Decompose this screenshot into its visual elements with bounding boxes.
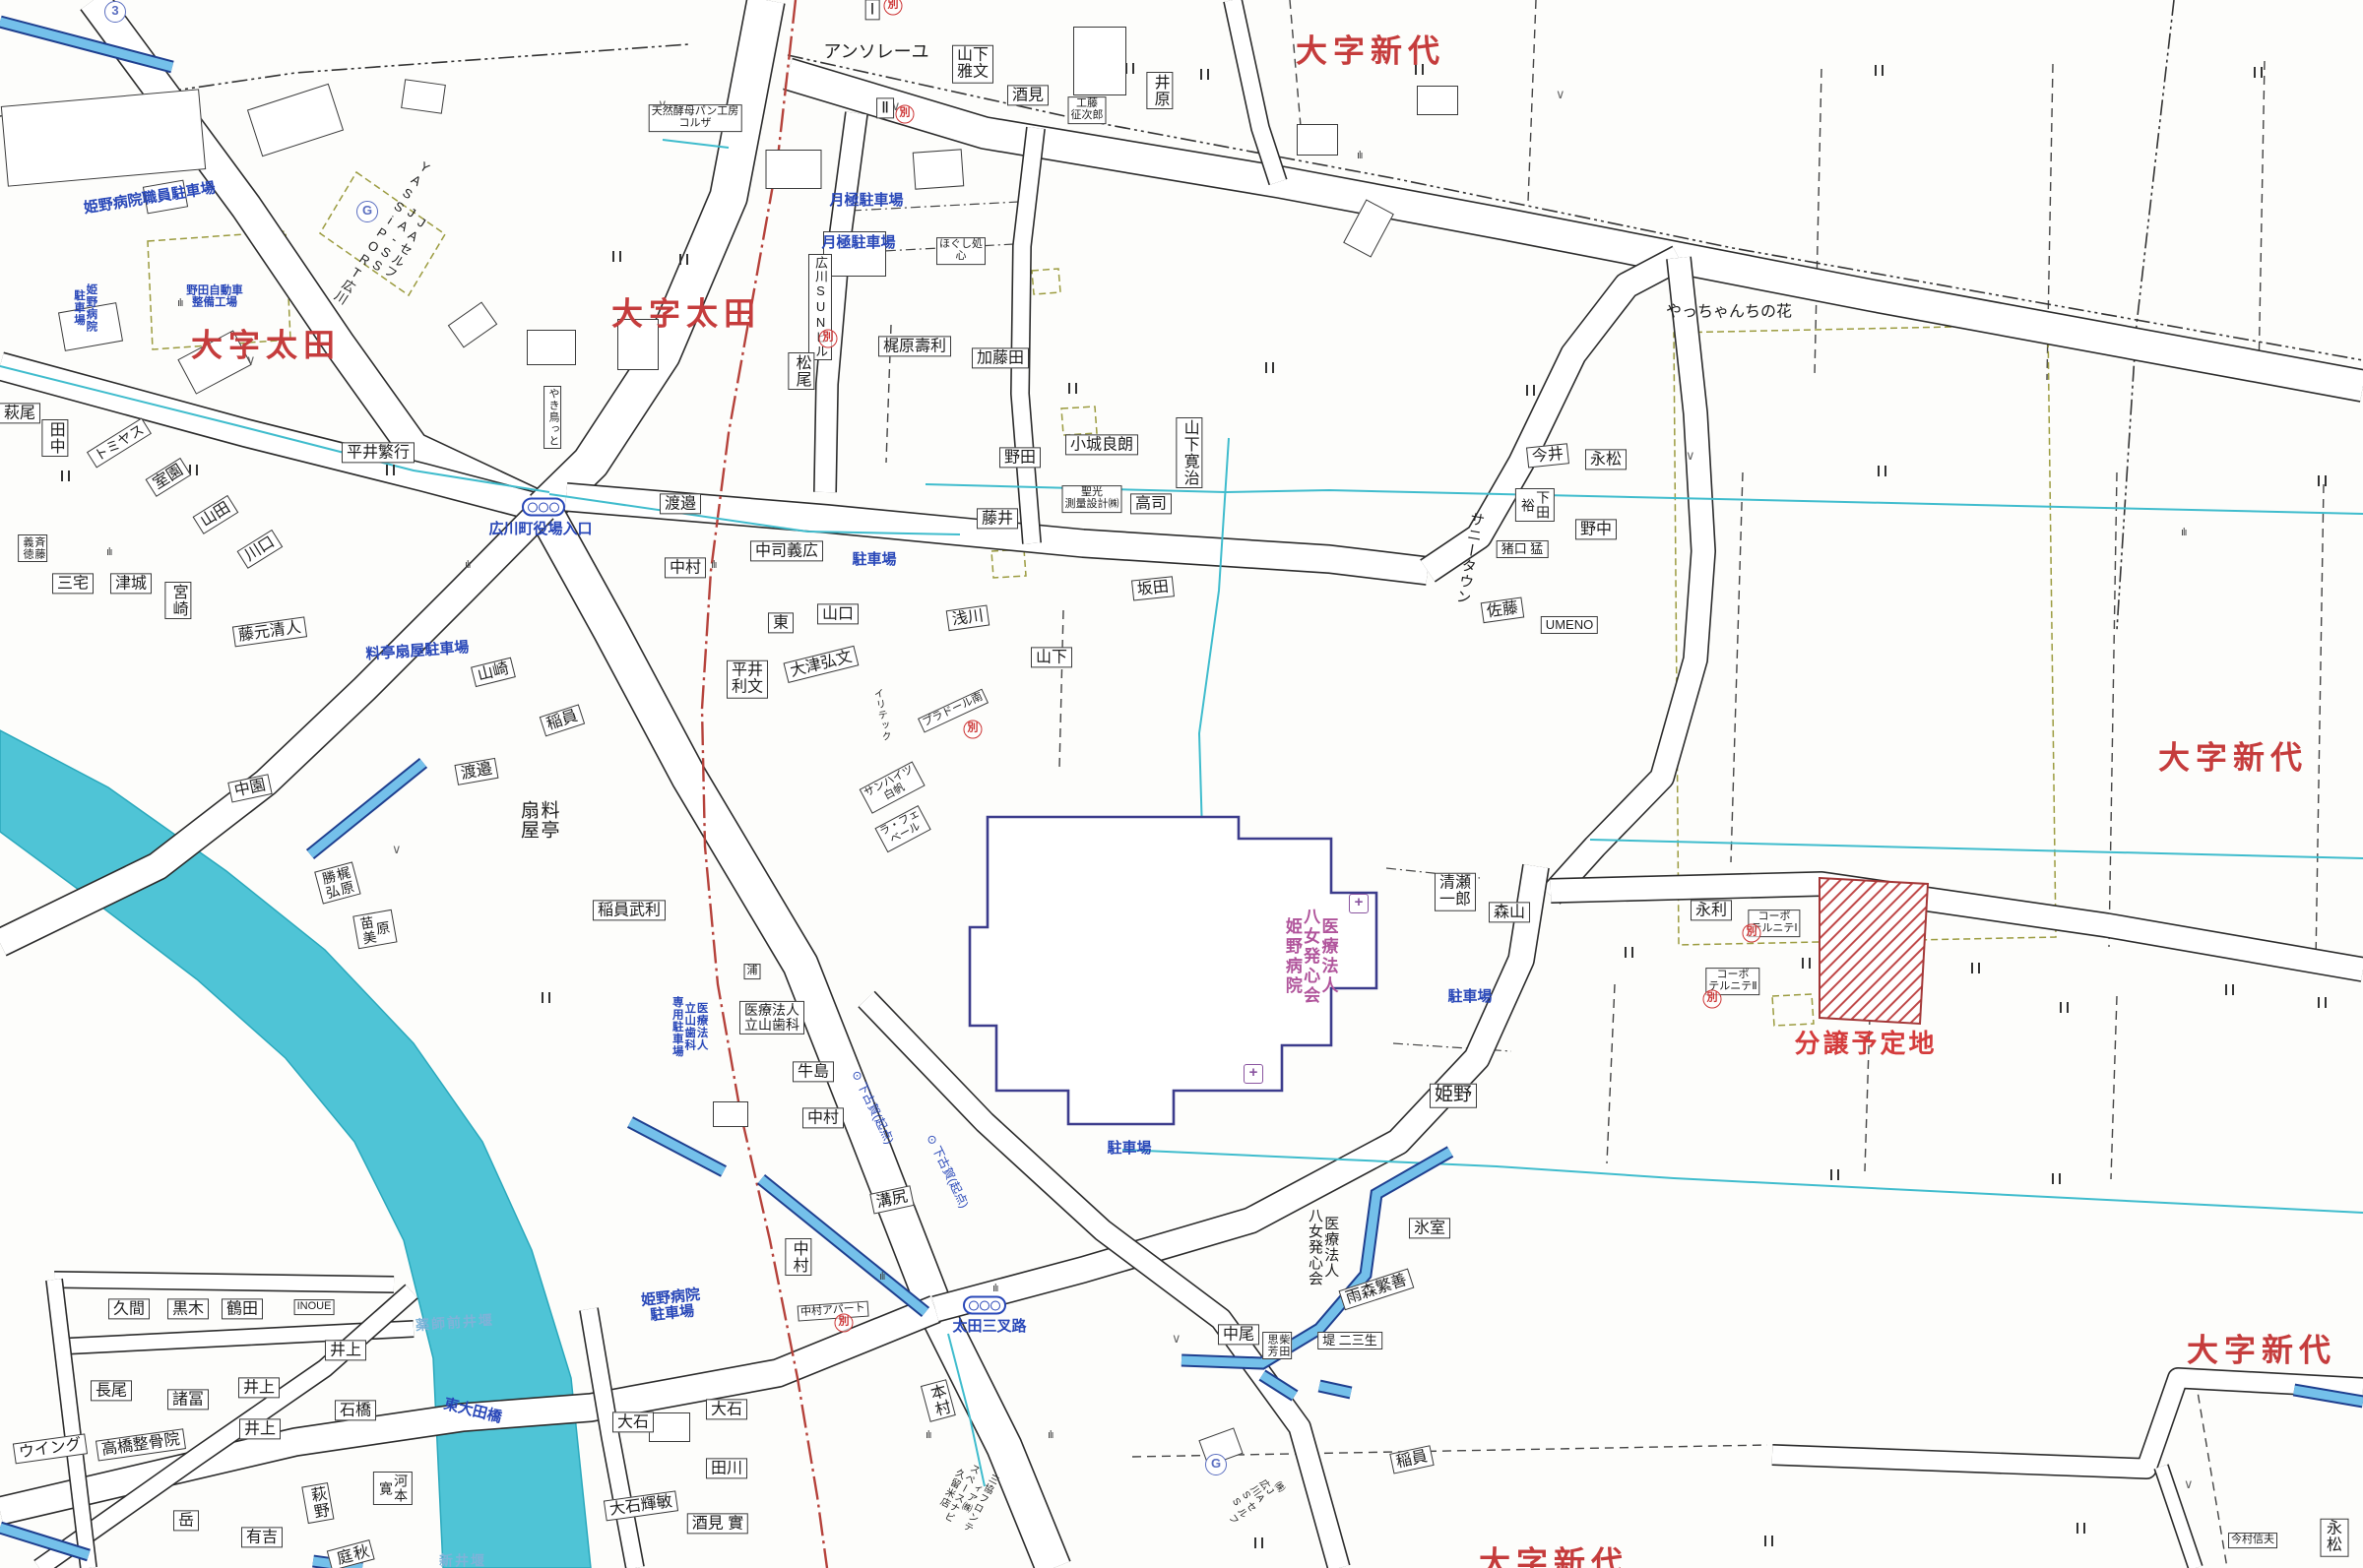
- residential-map-canvas: 大字太田大字太田大字新代大字新代大字新代大字新代分譲予定地姫野病院職員駐車場姫野…: [0, 0, 2363, 1568]
- field-mark: ılı: [465, 559, 471, 571]
- map-label: 氷室: [1409, 1218, 1450, 1238]
- map-label: 原 苗美: [352, 909, 398, 949]
- map-label: 堤 二三生: [1317, 1332, 1382, 1349]
- map-label: 中村: [785, 1238, 811, 1276]
- field-mark: ılı: [992, 1283, 998, 1294]
- map-label: 梶原壽利: [878, 336, 951, 356]
- map-label: 坂田: [1131, 576, 1175, 601]
- map-label: 岳: [173, 1510, 199, 1531]
- map-label: 久間: [108, 1298, 150, 1319]
- gas-station-icon: G: [1205, 1454, 1227, 1475]
- map-label: 鶴田: [222, 1298, 263, 1319]
- map-label: 医療法人 立山歯科: [739, 1001, 804, 1035]
- building-footprint: [1073, 27, 1126, 95]
- rice-field-mark: [2316, 475, 2329, 486]
- map-label: 東: [768, 612, 794, 633]
- hospital-cross-icon: +: [1244, 1064, 1263, 1084]
- building-footprint: [649, 1412, 690, 1442]
- building-footprint: [1297, 124, 1338, 156]
- rice-field-mark: [59, 470, 72, 481]
- map-label: 平井繁行: [342, 442, 415, 463]
- building-footprint: [1, 89, 206, 186]
- rice-field-mark: [2316, 997, 2329, 1008]
- field-mark: ılı: [1357, 150, 1363, 161]
- rice-field-mark: [1800, 958, 1813, 969]
- vegetation-mark: ∨: [392, 842, 402, 857]
- map-label: 猪口 猛: [1497, 540, 1549, 558]
- map-label: 山下 雅文: [952, 45, 993, 84]
- map-label: 藤井: [977, 508, 1018, 529]
- annex-betsu-icon: 別: [1743, 924, 1761, 943]
- map-label: 永利: [1691, 900, 1732, 920]
- map-label: 山下: [1031, 647, 1072, 667]
- map-label: 大字太田: [191, 329, 341, 363]
- map-label: 黒木: [167, 1298, 209, 1319]
- building-footprint: [527, 330, 576, 365]
- map-label: 大字新代: [2158, 741, 2308, 776]
- map-label: 三宅: [52, 573, 94, 594]
- map-label: 浦: [744, 964, 761, 979]
- rice-field-mark: [1828, 1169, 1841, 1180]
- map-label: 工藤 征次郎: [1068, 96, 1107, 124]
- map-label: 大石: [706, 1399, 747, 1419]
- map-label: 広川町役場入口: [488, 522, 592, 537]
- map-label: 井上: [238, 1377, 280, 1398]
- rice-field-mark: [1969, 963, 1982, 973]
- rice-field-mark: [1762, 1536, 1775, 1546]
- map-label: 津城: [110, 573, 152, 594]
- map-label: INOUE: [294, 1299, 335, 1315]
- map-label: 医療法人 立山歯科 専用駐車場: [671, 996, 707, 1058]
- rice-field-mark: [384, 465, 397, 475]
- vegetation-mark: ∨: [1686, 448, 1695, 464]
- map-label: 大字新代: [1479, 1546, 1629, 1568]
- map-label: 斉藤 義徳: [18, 534, 47, 562]
- map-label: 下田 裕: [1515, 488, 1555, 522]
- rice-field-mark: [1263, 362, 1276, 373]
- map-label: 大字新代: [1296, 34, 1445, 69]
- map-label: 酒見 實: [687, 1513, 748, 1534]
- map-label: 松尾: [788, 352, 814, 390]
- map-label: 駐車場: [1447, 989, 1492, 1005]
- field-mark: ılı: [2181, 527, 2187, 538]
- rice-field-mark: [2058, 1002, 2071, 1013]
- field-mark: ılı: [1048, 1429, 1054, 1441]
- building-footprint: [713, 1101, 748, 1127]
- map-label: 月極駐車場: [829, 193, 903, 209]
- map-label: 分譲予定地: [1794, 1030, 1937, 1057]
- map-label: やっちゃんちの花: [1666, 303, 1792, 320]
- map-label: 中村: [665, 557, 706, 578]
- rice-field-mark: [540, 992, 552, 1003]
- map-label: 大石: [612, 1411, 654, 1432]
- map-label: 医療法人 八女発心会 姫野病院: [1282, 908, 1336, 1006]
- map-label: 野田自動車 整備工場: [186, 285, 243, 310]
- map-label: 井上: [239, 1418, 281, 1439]
- map-label: Ⅱ: [876, 97, 894, 118]
- building-footprint: [401, 79, 446, 114]
- map-label: やき鳥っと: [543, 386, 561, 449]
- rice-field-mark: [1873, 65, 1885, 76]
- map-label: 萩尾: [0, 403, 40, 423]
- map-geometry-layer: [0, 0, 2363, 1568]
- map-label: 大字太田: [611, 297, 761, 332]
- map-label: 姫野病院 駐車場: [640, 1287, 702, 1325]
- map-label: 永松: [2321, 1519, 2349, 1557]
- map-label: 天然酵母パン工房 コルザ: [649, 104, 742, 132]
- rice-field-mark: [2252, 67, 2265, 78]
- map-label: 森山: [1489, 902, 1530, 922]
- traffic-signal-icon: [522, 498, 565, 517]
- map-label: 牛島: [793, 1061, 834, 1082]
- map-label: 駐車場: [852, 552, 896, 568]
- map-label: 料亭 扇屋: [517, 800, 557, 840]
- field-mark: ılı: [879, 1271, 885, 1283]
- field-mark: ılı: [106, 546, 112, 558]
- map-label: 太田三叉路: [952, 1319, 1026, 1335]
- annex-betsu-icon: 別: [1703, 990, 1722, 1009]
- map-label: 月極駐車場: [821, 235, 895, 251]
- map-label: 長尾: [91, 1380, 132, 1401]
- map-label: 新井堰: [439, 1553, 486, 1568]
- annex-betsu-icon: 別: [896, 105, 915, 124]
- rice-field-mark: [1198, 69, 1211, 80]
- sheet-number-icon: 3: [104, 1, 126, 23]
- traffic-signal-icon: [963, 1296, 1006, 1315]
- rice-field-mark: [677, 254, 690, 265]
- map-label: 中村: [802, 1107, 844, 1128]
- vegetation-mark: ∨: [1172, 1331, 1181, 1347]
- vegetation-mark: ∨: [2184, 1476, 2194, 1492]
- map-label: 諸冨: [167, 1389, 209, 1410]
- map-label: 河本 寛: [373, 1472, 413, 1505]
- field-mark: ılı: [711, 559, 717, 571]
- map-label: アンソレーユ: [823, 42, 928, 61]
- rice-field-mark: [2050, 1173, 2063, 1184]
- map-label: 永松: [1585, 449, 1627, 470]
- map-label: 今村信夫: [2228, 1533, 2277, 1548]
- map-label: 田中: [41, 419, 68, 457]
- map-label: 今井: [1526, 443, 1569, 469]
- map-label: 山口: [817, 603, 859, 624]
- map-label: 小城良朗: [1065, 434, 1138, 455]
- gas-station-icon: G: [356, 201, 378, 222]
- field-mark: ılı: [926, 1429, 931, 1441]
- hospital-cross-icon: +: [1349, 894, 1369, 913]
- rice-field-mark: [1876, 466, 1888, 476]
- map-label: ほぐし処 心: [936, 237, 986, 265]
- map-label: 野田: [999, 447, 1041, 468]
- map-label: 山下寛治: [1176, 417, 1202, 488]
- rice-field-mark: [610, 251, 623, 262]
- rice-field-mark: [2223, 984, 2236, 995]
- map-label: 大字新代: [2187, 1334, 2336, 1368]
- map-label: UMENO: [1541, 616, 1598, 634]
- map-label: 野中: [1575, 519, 1617, 539]
- annex-betsu-icon: 別: [964, 721, 983, 739]
- map-label: 酒見: [1007, 85, 1049, 105]
- map-label: 加藤田: [972, 347, 1029, 368]
- building-footprint: [913, 149, 965, 189]
- map-label: 清瀬 一郎: [1435, 873, 1476, 911]
- field-mark: ılı: [177, 297, 183, 309]
- map-label: Ⅰ: [865, 0, 880, 21]
- map-label: 医療法人 八女発心会: [1307, 1208, 1338, 1286]
- map-label: 井上: [325, 1340, 366, 1360]
- road-network: [0, 0, 2363, 1568]
- rice-field-mark: [1524, 385, 1537, 396]
- map-label: 高司: [1130, 493, 1172, 514]
- map-label: 井原: [1146, 72, 1173, 109]
- building-footprint: [766, 150, 822, 189]
- map-label: 中尾: [1218, 1324, 1259, 1345]
- map-label: 渡邉: [660, 493, 701, 514]
- vegetation-mark: ∨: [1556, 87, 1565, 102]
- building-footprint: [1417, 86, 1458, 115]
- rice-field-mark: [1623, 947, 1635, 958]
- map-label: 中司義広: [750, 540, 823, 561]
- map-label: 姫野病院 駐車場: [73, 283, 97, 333]
- map-label: 姫野: [1430, 1084, 1477, 1108]
- map-label: 稲員武利: [593, 900, 666, 920]
- rice-field-mark: [1252, 1537, 1265, 1548]
- annex-betsu-icon: 別: [835, 1314, 854, 1333]
- map-label: 聖光 測量設計㈱: [1062, 485, 1122, 513]
- annex-betsu-icon: 別: [819, 330, 838, 348]
- map-label: 平井 利文: [727, 660, 768, 699]
- map-label: 石橋: [335, 1400, 376, 1420]
- map-label: 有吉: [241, 1527, 283, 1547]
- map-label: 駐車場: [1107, 1141, 1151, 1157]
- rice-field-mark: [2075, 1523, 2087, 1534]
- map-label: 田川: [706, 1458, 747, 1478]
- rice-field-mark: [1066, 383, 1079, 394]
- map-label: 柴田 思芳: [1262, 1332, 1292, 1359]
- map-label: 宮崎: [164, 582, 191, 619]
